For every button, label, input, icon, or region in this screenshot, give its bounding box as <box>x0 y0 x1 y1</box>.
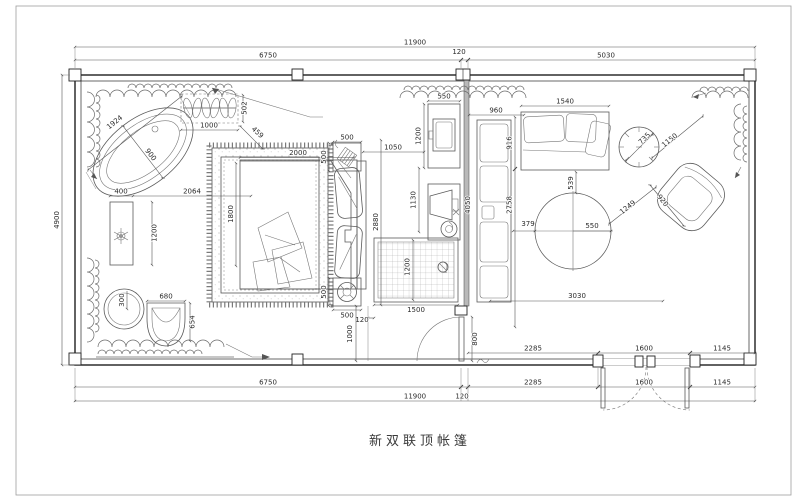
dim-top-col: 120 <box>452 48 465 56</box>
headboard <box>357 161 366 289</box>
dim-bed-width: 2880 <box>372 213 380 231</box>
door-swing-left <box>603 367 646 410</box>
wall-section-mark <box>477 359 489 363</box>
curtain-bottom-left <box>98 340 224 347</box>
dim-shower-gap: 120 <box>355 316 368 324</box>
mid-post-bottom <box>292 354 303 365</box>
dim-top-total: 11900 <box>404 39 426 47</box>
dim-left-height: 4900 <box>53 211 61 229</box>
side-table <box>619 127 659 167</box>
dim-console-to-rug: 2064 <box>183 188 201 196</box>
corner-post <box>744 353 756 365</box>
door-leaf-left <box>601 368 605 408</box>
curtain-left-upper <box>87 92 95 167</box>
pillow <box>334 225 363 279</box>
tv <box>430 190 452 220</box>
curtain-left-lower-small <box>95 260 99 332</box>
dim-nightstand-top-d: 500 <box>320 150 328 163</box>
curtain-leader-bottom-left <box>226 344 268 357</box>
dim-entry-depth: 1000 <box>346 325 354 343</box>
partition-wall <box>464 80 469 306</box>
dim-sidetable-dia: 735 <box>637 131 652 146</box>
dim-armchair-width: 1150 <box>660 132 679 149</box>
door-leaf <box>459 317 464 361</box>
dim-nightstand-bot-d: 500 <box>320 285 328 298</box>
door-swing-right <box>647 367 690 410</box>
tub-chair <box>147 303 185 346</box>
door-swing-arc <box>417 317 461 361</box>
arrowhead <box>91 173 97 179</box>
door-post-left <box>593 355 603 367</box>
dim-botA-1: 2285 <box>524 345 542 353</box>
dim-botB-3: 1145 <box>713 379 731 387</box>
curtain-right-wall <box>734 104 741 160</box>
door-post-right <box>690 355 700 367</box>
kettle <box>441 221 457 237</box>
dim-door-width: 800 <box>471 332 479 345</box>
dim-sofa-width: 1540 <box>556 98 574 106</box>
clothes-rack <box>181 94 238 123</box>
curtains <box>87 84 748 360</box>
tv-cabinet <box>428 184 460 240</box>
sofa <box>521 112 611 170</box>
floor-plan-svg: 11900 6750 120 5030 4900 2285 1600 1145 … <box>0 0 807 501</box>
dim-tv-depth: 1130 <box>410 191 418 209</box>
door-frame-head <box>455 306 467 315</box>
dim-console-length: 1200 <box>151 224 159 242</box>
dim-console-width: 400 <box>114 188 127 196</box>
mid-post-top <box>292 69 303 80</box>
dim-botB-left: 6750 <box>259 379 277 387</box>
dim-nightstand-bot-w: 500 <box>340 312 353 320</box>
dim-botB-2: 1600 <box>635 379 653 387</box>
tent-walls <box>69 69 756 367</box>
curtain-top-middle <box>400 91 526 98</box>
dim-sofa-depth: 916 <box>506 136 514 150</box>
tub-drain <box>152 126 158 132</box>
dim-tub-length: 1924 <box>105 113 124 131</box>
dim-cabinet-depth: 1200 <box>415 127 423 145</box>
curtain-top-left-small <box>128 84 232 88</box>
dim-stool-radius: 300 <box>118 293 126 306</box>
console-table <box>110 202 133 265</box>
dim-table-gap-left: 379 <box>521 220 534 228</box>
basin-tap <box>429 131 433 139</box>
curtain-left-lower <box>87 258 94 342</box>
curtain-bottom-left-small <box>98 350 202 354</box>
dim-rug-height: 1800 <box>227 205 235 223</box>
bedroom-rug <box>209 145 331 305</box>
dim-botB-1: 2285 <box>524 379 542 387</box>
dim-table-dia: 550 <box>585 222 598 230</box>
drawing-title: 新双联顶帐篷 <box>369 430 471 449</box>
dim-botA-3: 1145 <box>713 345 731 353</box>
curtain-top-right-small <box>700 87 748 91</box>
dim-botC-total: 11900 <box>404 393 426 401</box>
dim-top-right: 5030 <box>597 52 615 60</box>
dim-partition-length: 4050 <box>464 196 472 214</box>
curtain-leader-top-left <box>212 88 323 117</box>
dim-nightstand-top-w: 500 <box>340 134 353 142</box>
washbasin-cabinet <box>428 104 460 168</box>
curtain-left-upper-small <box>96 95 100 167</box>
dim-bench-length: 2758 <box>506 196 514 214</box>
dim-top-left: 6750 <box>259 52 277 60</box>
entry-door <box>417 306 467 361</box>
dim-cabinet-width: 550 <box>437 93 450 101</box>
dim-rack-depth: 502 <box>241 101 249 114</box>
dim-bed-length: 2000 <box>289 149 307 157</box>
dim-bed-to-cabinet: 1050 <box>384 144 402 152</box>
dim-sitting-width: 3030 <box>568 292 586 300</box>
dim-bench-offset: 960 <box>489 107 502 115</box>
dim-botA-2: 1600 <box>635 345 653 353</box>
corner-post <box>69 353 81 365</box>
dimensions: 11900 6750 120 5030 4900 2285 1600 1145 … <box>53 39 755 403</box>
dim-rack-width: 1000 <box>200 122 218 130</box>
dim-tubchair-width: 680 <box>159 293 172 301</box>
dim-botC-col: 120 <box>455 393 468 401</box>
corner-post <box>69 69 81 81</box>
dim-table-to-chair: 1249 <box>618 199 637 216</box>
dim-shower-depth: 1200 <box>404 258 412 276</box>
corner-post <box>744 69 756 81</box>
dim-shower-width: 1500 <box>407 306 425 314</box>
dim-tubchair-depth: 654 <box>189 315 197 329</box>
floor-plan-sheet: 11900 6750 120 5030 4900 2285 1600 1145 … <box>0 0 807 501</box>
curtain-right-wall-small <box>743 106 747 162</box>
dim-table-gap-top: 539 <box>567 176 575 189</box>
